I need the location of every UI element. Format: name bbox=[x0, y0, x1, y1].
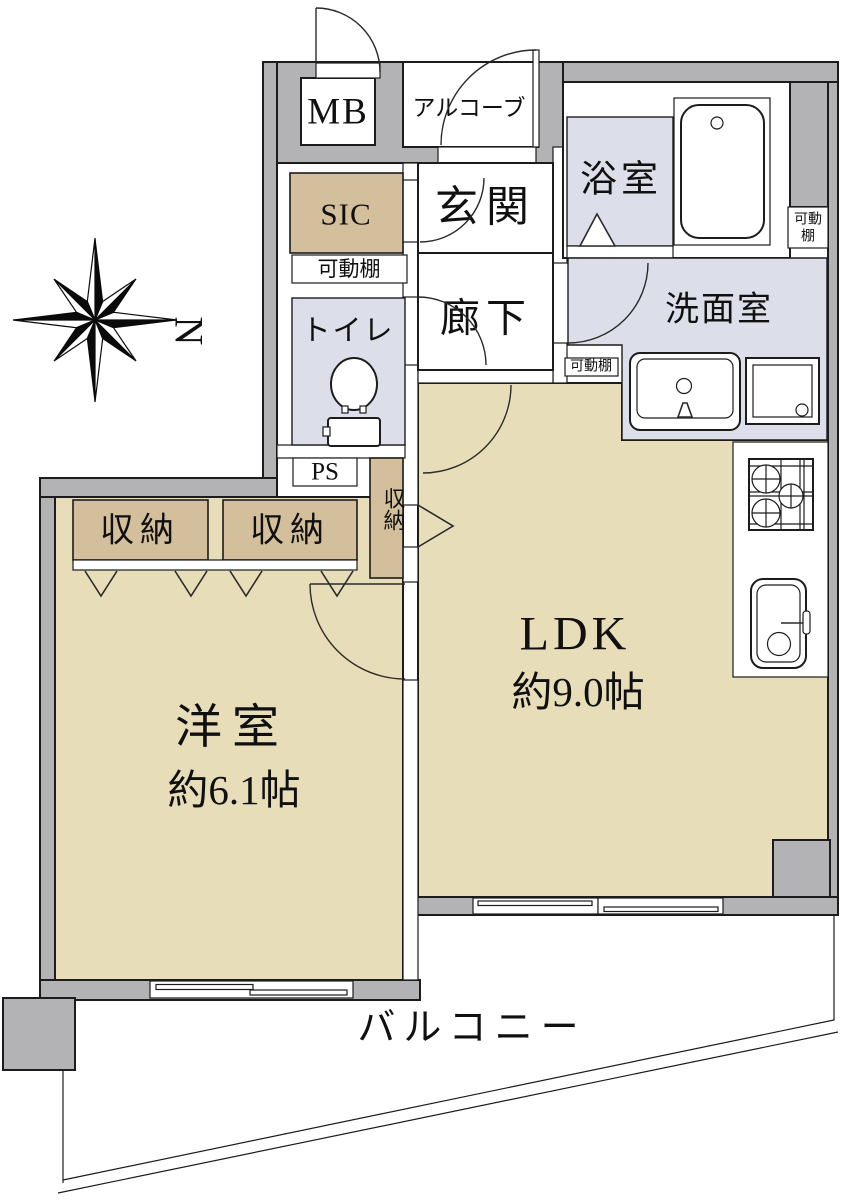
wall-hall-ldk bbox=[418, 370, 553, 383]
toilet-hinge bbox=[360, 406, 366, 413]
entrance-label: 玄関 bbox=[435, 185, 537, 232]
ldk-size-label: 約9.0帖 bbox=[511, 669, 644, 715]
movable-shelf-label-line2: 棚 bbox=[801, 229, 815, 245]
floor-plan-page: バルコニー LDK 約9.0帖 bbox=[0, 0, 847, 1200]
toilet-hinge bbox=[342, 406, 348, 413]
compass-north-label: N bbox=[167, 317, 212, 346]
front-door-opening bbox=[438, 147, 536, 163]
wall-top-right-band bbox=[563, 62, 838, 82]
basin-faucet bbox=[677, 379, 692, 394]
wall-left-upper bbox=[263, 62, 277, 497]
closet-left-label: 収納 bbox=[100, 512, 180, 550]
bathroom-threshold bbox=[567, 246, 673, 258]
bathroom-label: 浴室 bbox=[580, 159, 662, 201]
window-sash bbox=[156, 985, 253, 990]
kitchen bbox=[733, 442, 828, 677]
corridor-label: 廊下 bbox=[440, 296, 532, 341]
balcony-rail-lower bbox=[58, 1032, 838, 1193]
kitchen-sink bbox=[751, 579, 810, 668]
washer-drain bbox=[796, 404, 808, 416]
closet-right-label: 収納 bbox=[250, 512, 330, 550]
toilet-lever bbox=[323, 427, 330, 436]
sink-drain bbox=[768, 633, 791, 656]
wall-right bbox=[828, 82, 838, 915]
western-room-label: 洋室 bbox=[175, 702, 289, 754]
toilet-room: トイレ bbox=[292, 298, 405, 446]
shoe-closet-label: SIC bbox=[320, 197, 371, 232]
western-room-window bbox=[150, 981, 353, 998]
meter-box-label: MB bbox=[307, 92, 369, 133]
wall-seg bbox=[403, 547, 418, 582]
western-room-size-label: 約6.1帖 bbox=[167, 767, 300, 813]
bathroom: 浴室 bbox=[563, 82, 790, 258]
wall-western-top bbox=[40, 478, 277, 497]
toilet-bowl bbox=[331, 358, 377, 410]
window-sash bbox=[478, 901, 592, 906]
alcove-label: アルコーブ bbox=[413, 96, 526, 121]
window-sash bbox=[604, 907, 718, 912]
bathtub-drain bbox=[711, 117, 723, 129]
western-room: 洋室 約6.1帖 収納 収納 bbox=[55, 497, 403, 998]
washroom-label: 洗面室 bbox=[665, 291, 773, 329]
compass: N bbox=[13, 238, 212, 402]
wall-western-left bbox=[40, 497, 55, 1000]
pipe-space-label: PS bbox=[311, 459, 339, 486]
wall-seg bbox=[403, 680, 418, 980]
movable-shelf-label-line1: 可動 bbox=[794, 212, 822, 228]
balcony-label: バルコニー bbox=[357, 1007, 586, 1049]
mb-opening bbox=[316, 63, 380, 78]
wall-ldk-corner-block bbox=[773, 840, 830, 897]
sink-faucet bbox=[803, 611, 810, 634]
wash-basin bbox=[630, 353, 740, 430]
wall-bottom-left-block bbox=[3, 998, 75, 1070]
floor-plan: バルコニー LDK 約9.0帖 bbox=[0, 0, 847, 1200]
window-sash bbox=[250, 990, 347, 995]
wall-seg bbox=[403, 163, 418, 180]
movable-shelf-label-small: 可動棚 bbox=[570, 359, 612, 375]
storage-column-label: 収納 bbox=[381, 487, 406, 531]
ldk-windows bbox=[473, 898, 723, 914]
front-door-leaf bbox=[533, 50, 539, 147]
stove bbox=[749, 459, 813, 530]
toilet-label: トイレ bbox=[301, 315, 394, 347]
washer-pan bbox=[746, 358, 819, 424]
closet-front-rail bbox=[73, 560, 357, 570]
ldk-label: LDK bbox=[520, 608, 631, 661]
movable-shelf-label: 可動棚 bbox=[318, 257, 381, 281]
toilet-tank bbox=[328, 418, 380, 446]
